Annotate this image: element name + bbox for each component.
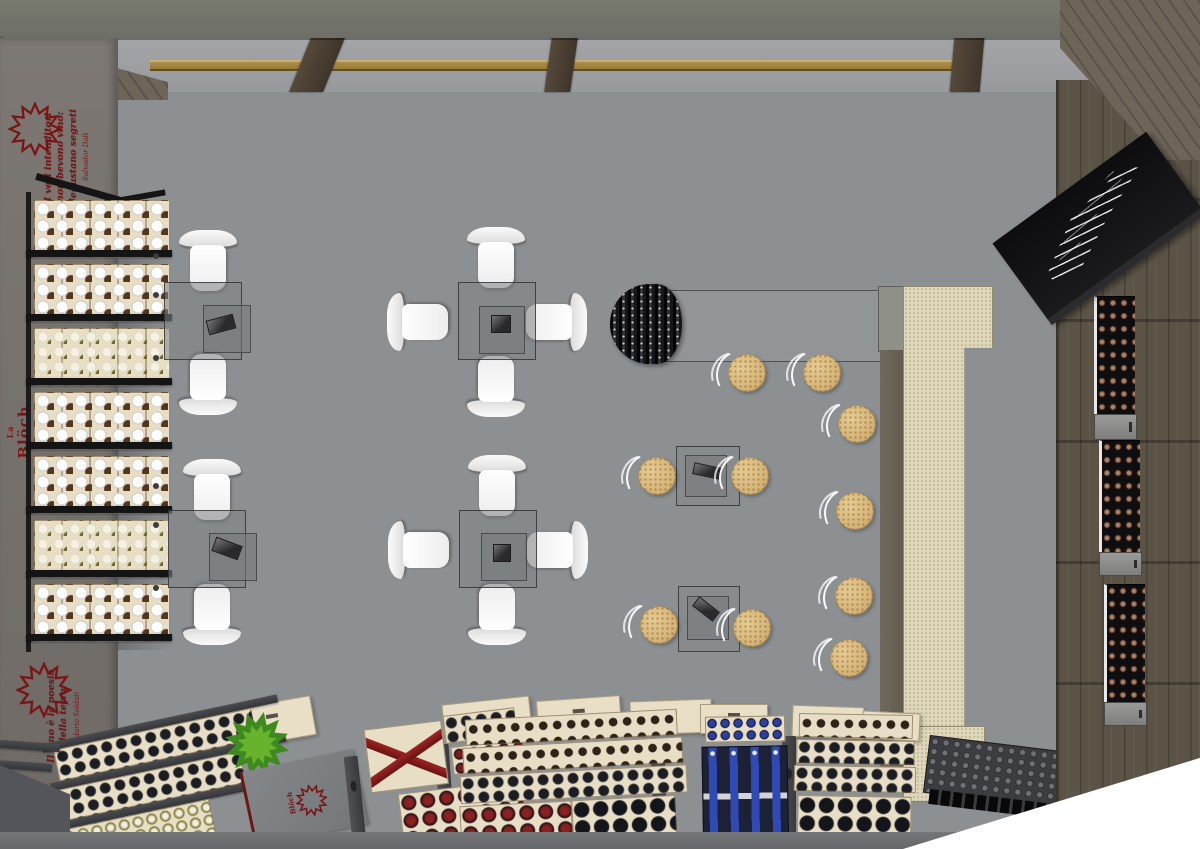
chair-back <box>570 293 587 351</box>
shelf-bar <box>26 378 172 385</box>
wine-display-table <box>793 713 921 841</box>
chair-back <box>179 398 237 415</box>
chalk-writing <box>1014 154 1173 294</box>
chair-back <box>183 628 241 645</box>
wall-wine-shelving <box>26 192 172 652</box>
back-counter <box>878 286 907 352</box>
bar-stool <box>835 577 873 615</box>
bar-stool <box>638 457 676 495</box>
wine-display-table <box>699 715 793 841</box>
floor-starburst-logo-icon <box>293 781 331 819</box>
shelf-bar <box>26 442 172 449</box>
chalk-menu-board <box>1002 150 1200 300</box>
chair-back <box>467 400 525 417</box>
ceiling-spot <box>153 253 159 259</box>
dining-table <box>458 282 536 360</box>
shelf-bar <box>26 634 172 641</box>
brand-prefix: La <box>5 387 15 477</box>
wine-crate <box>799 713 913 739</box>
navy-wine-crate <box>701 745 789 836</box>
gift-wine-crate <box>364 720 449 793</box>
bar-stool <box>803 354 841 392</box>
bar-stool <box>836 492 874 530</box>
shelf-bar <box>26 250 172 257</box>
dining-table <box>164 282 242 360</box>
shelf-bar <box>26 314 172 321</box>
back-counter-low <box>880 350 903 770</box>
wine-fridge-door <box>1094 414 1137 440</box>
table-menu-holder <box>491 315 511 333</box>
shelf-rail <box>26 192 31 652</box>
bar-stool <box>731 457 769 495</box>
dining-table <box>168 510 246 588</box>
ceiling-spot <box>153 355 159 361</box>
ceiling-spot <box>153 522 159 528</box>
chalkboard-surface <box>992 132 1200 325</box>
bar-stool <box>830 639 868 677</box>
long-counter-table <box>655 290 907 362</box>
wine-fridge-door <box>1104 702 1147 726</box>
ceiling-spot <box>153 483 159 489</box>
wine-shop-top-view: I veri intenditori non bevono vino: degu… <box>0 0 1200 849</box>
wine-display-table <box>455 706 702 849</box>
shelf-bar <box>26 506 172 513</box>
bar-stool <box>640 606 678 644</box>
chair-back <box>571 521 588 579</box>
chair <box>390 300 454 344</box>
top-fascia <box>0 0 1200 38</box>
ceiling-spot <box>153 292 159 298</box>
chair-seat <box>194 584 230 630</box>
wine-fridge-niche <box>1104 584 1145 704</box>
chair-seat <box>479 584 515 630</box>
wine-crate-blue-caps <box>705 715 785 742</box>
ceiling-spot <box>153 585 159 591</box>
chair-seat <box>190 354 226 400</box>
wine-fridge-door <box>1099 552 1142 576</box>
chair <box>391 528 455 572</box>
bar-stool <box>728 354 766 392</box>
bar-stool <box>733 609 771 647</box>
wine-fridge-niche <box>1094 296 1135 416</box>
chair-seat <box>478 356 514 402</box>
dining-table <box>459 510 537 588</box>
table-menu-holder <box>493 544 511 562</box>
wine-crate <box>794 765 916 793</box>
bar-stool <box>838 405 876 443</box>
chair-seat <box>403 532 449 568</box>
wine-crate <box>796 739 914 765</box>
curved-bottle-rack <box>610 284 682 364</box>
chair-seat <box>402 304 448 340</box>
window-post <box>950 38 985 92</box>
wine-fridge-niche <box>1099 440 1140 554</box>
shelf-bar <box>26 570 172 577</box>
chair-back <box>468 628 526 645</box>
